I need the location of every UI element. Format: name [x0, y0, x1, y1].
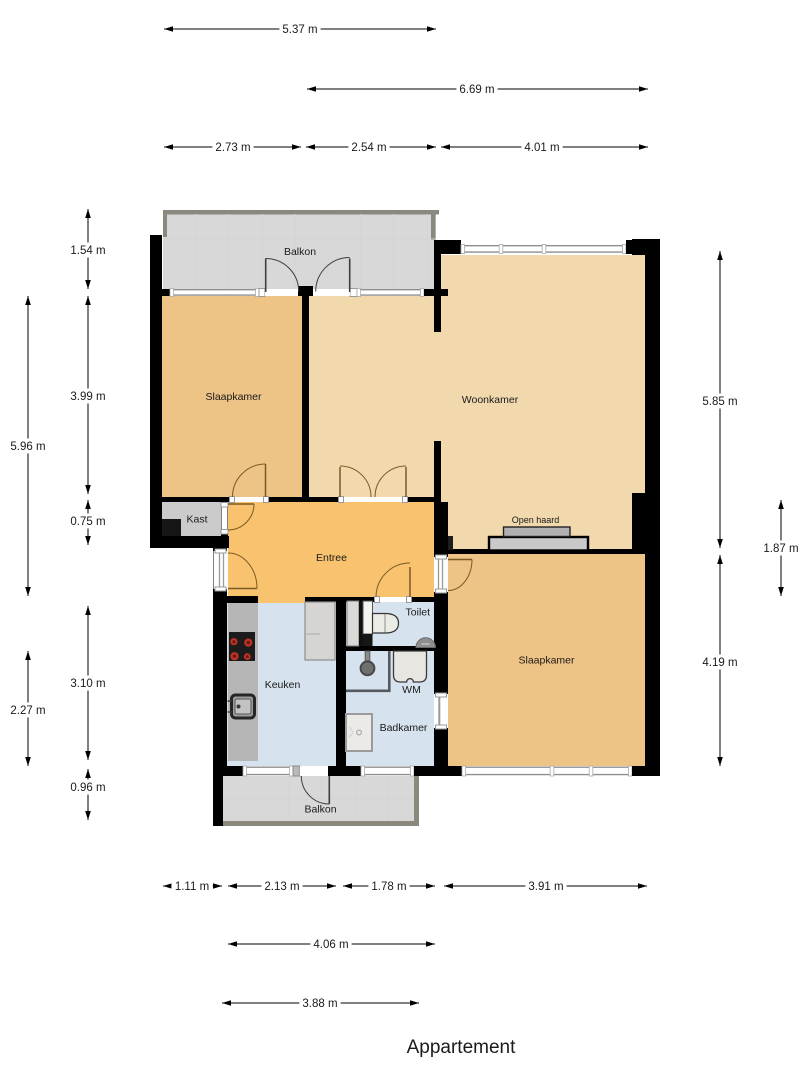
svg-text:5.37 m: 5.37 m	[282, 24, 317, 36]
svg-text:1.78 m: 1.78 m	[371, 881, 406, 893]
svg-text:Balkon: Balkon	[284, 246, 316, 258]
svg-text:2.27 m: 2.27 m	[10, 705, 45, 717]
svg-text:3.10 m: 3.10 m	[70, 678, 105, 690]
svg-text:0.75 m: 0.75 m	[70, 516, 105, 528]
svg-text:1.87 m: 1.87 m	[763, 543, 798, 555]
svg-text:2.54 m: 2.54 m	[351, 142, 386, 154]
svg-text:Woonkamer: Woonkamer	[462, 394, 519, 406]
svg-text:2.13 m: 2.13 m	[264, 881, 299, 893]
svg-text:Slaapkamer: Slaapkamer	[518, 655, 575, 667]
svg-text:Appartement: Appartement	[407, 1037, 517, 1058]
svg-text:Kast: Kast	[186, 514, 207, 526]
svg-text:4.01 m: 4.01 m	[524, 142, 559, 154]
svg-text:Entree: Entree	[316, 552, 347, 564]
svg-text:Slaapkamer: Slaapkamer	[205, 391, 262, 403]
svg-text:Badkamer: Badkamer	[380, 722, 428, 734]
svg-text:5.96 m: 5.96 m	[10, 441, 45, 453]
svg-text:1.54 m: 1.54 m	[70, 245, 105, 257]
svg-text:5.85 m: 5.85 m	[702, 396, 737, 408]
svg-text:3.88 m: 3.88 m	[302, 998, 337, 1010]
svg-text:1.11 m: 1.11 m	[175, 881, 209, 893]
svg-text:0.96 m: 0.96 m	[70, 782, 105, 794]
svg-text:Open haard: Open haard	[512, 515, 560, 525]
svg-text:3.91 m: 3.91 m	[528, 881, 563, 893]
svg-text:2.73 m: 2.73 m	[215, 142, 250, 154]
svg-text:4.06 m: 4.06 m	[313, 939, 348, 951]
svg-text:Keuken: Keuken	[265, 679, 301, 691]
svg-text:Balkon: Balkon	[304, 804, 336, 816]
svg-text:Toilet: Toilet	[406, 607, 431, 619]
svg-text:3.99 m: 3.99 m	[70, 391, 105, 403]
svg-text:WM: WM	[402, 684, 421, 696]
svg-text:4.19 m: 4.19 m	[702, 657, 737, 669]
svg-text:6.69 m: 6.69 m	[459, 84, 494, 96]
